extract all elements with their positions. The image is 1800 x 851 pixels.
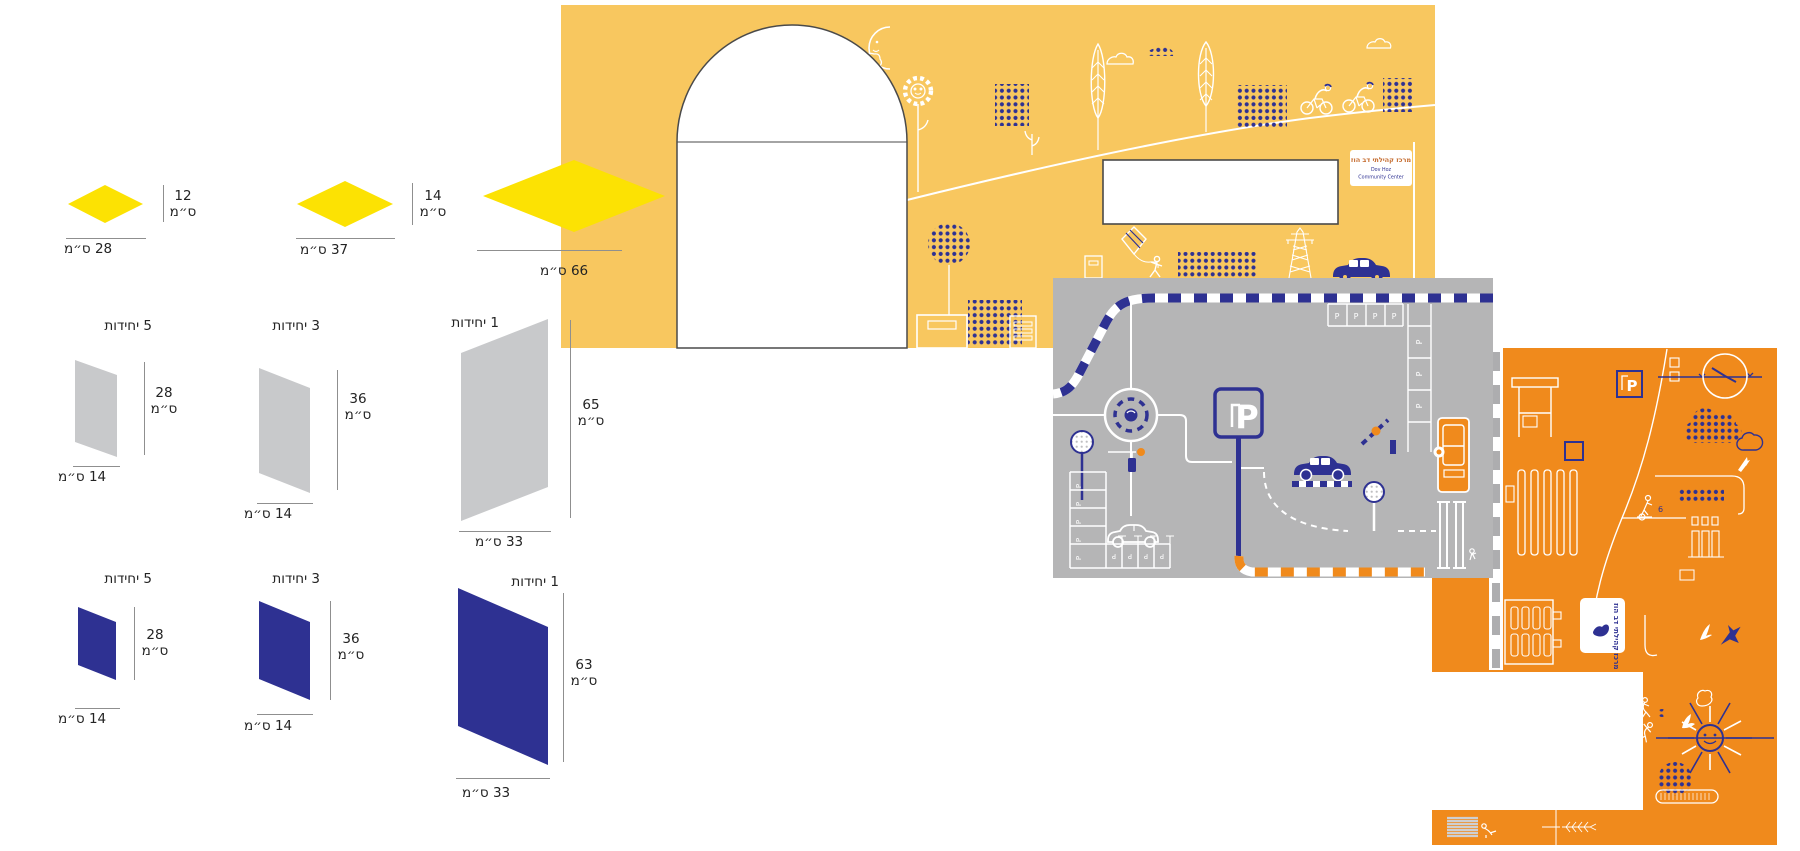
yellow-diamond-small xyxy=(68,185,143,223)
parking-cell-letter: P xyxy=(1335,312,1340,321)
parking-cell-letter: P xyxy=(1354,312,1359,321)
height-dimension-line xyxy=(163,185,164,222)
units-count-label: 3 יחידות xyxy=(262,318,320,334)
height-value: 28 xyxy=(138,628,172,644)
halftone-strip xyxy=(1678,488,1724,503)
gray-parallelogram-medium xyxy=(259,368,310,493)
height-value: 63 xyxy=(567,658,601,674)
height-value: 36 xyxy=(334,632,368,648)
height-dimension-label: 28 ס״מ xyxy=(138,628,172,660)
width-dimension-label: 28 ס״מ xyxy=(64,242,148,258)
height-dimension-line xyxy=(134,607,135,680)
width-dimension-line xyxy=(477,250,622,251)
height-unit: ס״מ xyxy=(147,402,181,418)
blank-panel-area xyxy=(1432,672,1643,810)
width-dimension-line xyxy=(257,503,313,504)
width-dimension-label: 14 ס״מ xyxy=(58,470,120,486)
units-count-label: 1 יחידות xyxy=(441,315,499,331)
halftone-square xyxy=(1383,78,1414,112)
width-dimension-line xyxy=(66,238,146,239)
parking-sign-letter: P xyxy=(1627,377,1638,395)
height-dimension-line xyxy=(144,362,145,455)
width-dimension-label: 66 ס״מ xyxy=(540,264,630,280)
height-unit: ס״מ xyxy=(138,644,172,660)
arch-doorway xyxy=(677,25,907,348)
parking-cell-letter: P xyxy=(1075,556,1083,560)
parking-cell-letter: P xyxy=(1075,502,1083,506)
units-count-label: 3 יחידות xyxy=(262,571,320,587)
parking-sign-letter: P xyxy=(1235,398,1258,436)
width-dimension-line xyxy=(459,531,551,532)
gray-mural-panel: P P P P P xyxy=(1053,278,1493,578)
halftone-ball xyxy=(1658,762,1692,796)
blank-signboard xyxy=(1103,160,1338,224)
blue-parallelogram-small xyxy=(78,607,116,680)
parking-cell-letter: P xyxy=(1075,520,1083,524)
parking-cell-letter: P xyxy=(1112,552,1116,560)
parking-cell-letter: P xyxy=(1415,371,1424,376)
sign-title: מרכז קהילתי דב הוז xyxy=(1351,156,1412,164)
bus-icon xyxy=(1434,418,1470,492)
height-dimension-line xyxy=(570,320,571,518)
blue-parallelogram-large xyxy=(458,588,548,765)
parking-cell-letter: P xyxy=(1128,552,1132,560)
gray-parallelogram-large xyxy=(461,319,548,521)
units-count-label: 5 יחידות xyxy=(94,571,152,587)
height-value: 36 xyxy=(341,392,375,408)
width-dimension-label: 14 ס״מ xyxy=(244,719,306,735)
height-unit: ס״מ xyxy=(341,408,375,424)
height-dimension-label: 28 ס״מ xyxy=(147,386,181,418)
halftone-square xyxy=(1237,85,1287,127)
height-dimension-line xyxy=(330,601,331,700)
halftone-hedge xyxy=(1178,252,1258,278)
parking-cell-letter: P xyxy=(1075,538,1083,542)
design-spec-canvas: מרכז קהילתי דב הוז Dov Hoz Community Cen… xyxy=(0,0,1800,851)
width-dimension-label: 14 ס״מ xyxy=(244,507,306,523)
height-dimension-label: 36 ס״מ xyxy=(334,632,368,664)
parking-cell-letter: P xyxy=(1415,339,1424,344)
height-unit: ס״מ xyxy=(416,205,450,221)
width-dimension-line xyxy=(296,238,395,239)
height-value: 14 xyxy=(416,189,450,205)
width-dimension-line xyxy=(456,778,550,779)
height-unit: ס״מ xyxy=(166,205,200,221)
height-dimension-line xyxy=(337,370,338,490)
height-dimension-label: 36 ס״מ xyxy=(341,392,375,424)
width-dimension-label: 33 ס״מ xyxy=(475,535,545,551)
height-dimension-label: 65 ס״מ xyxy=(574,398,608,430)
figure-label: 6 xyxy=(1658,505,1663,514)
parking-cell-letter: P xyxy=(1144,552,1148,560)
gray-parallelogram-small xyxy=(75,360,117,457)
width-dimension-line xyxy=(257,714,313,715)
halftone-square xyxy=(995,84,1029,126)
height-dimension-label: 12 ס״מ xyxy=(166,189,200,221)
yellow-diamond-medium xyxy=(297,181,393,227)
parking-cell-letter: P xyxy=(1373,312,1378,321)
width-dimension-label: 14 ס״מ xyxy=(58,712,120,728)
height-dimension-label: 63 ס״מ xyxy=(567,658,601,690)
height-value: 65 xyxy=(574,398,608,414)
height-unit: ס״מ xyxy=(574,414,608,430)
height-unit: ס״מ xyxy=(567,674,601,690)
units-count-label: 1 יחידות xyxy=(501,574,559,590)
width-dimension-line xyxy=(75,708,120,709)
parking-cell-letter: P xyxy=(1160,552,1164,560)
sign-subtitle-en2: Community Center xyxy=(1358,175,1403,181)
height-unit: ס״מ xyxy=(334,648,368,664)
parking-cell-letter: P xyxy=(1392,312,1397,321)
height-value: 28 xyxy=(147,386,181,402)
height-dimension-label: 14 ס״מ xyxy=(416,189,450,221)
units-count-label: 5 יחידות xyxy=(94,318,152,334)
width-dimension-label-clipped: 33 ס״מ xyxy=(462,786,542,797)
height-dimension-line xyxy=(563,593,564,762)
parking-cell-letter: P xyxy=(1415,403,1424,408)
width-dimension-label: 37 ס״מ xyxy=(300,243,390,259)
height-value: 12 xyxy=(166,189,200,205)
width-dimension-line xyxy=(73,466,120,467)
height-dimension-line xyxy=(412,183,413,225)
sign-subtitle-en1: Dov Hoz xyxy=(1371,167,1392,173)
card-title: מרכז קהילתי דב הוז xyxy=(1612,603,1621,670)
blue-parallelogram-medium xyxy=(259,601,310,700)
parking-cell-letter: P xyxy=(1075,484,1083,488)
